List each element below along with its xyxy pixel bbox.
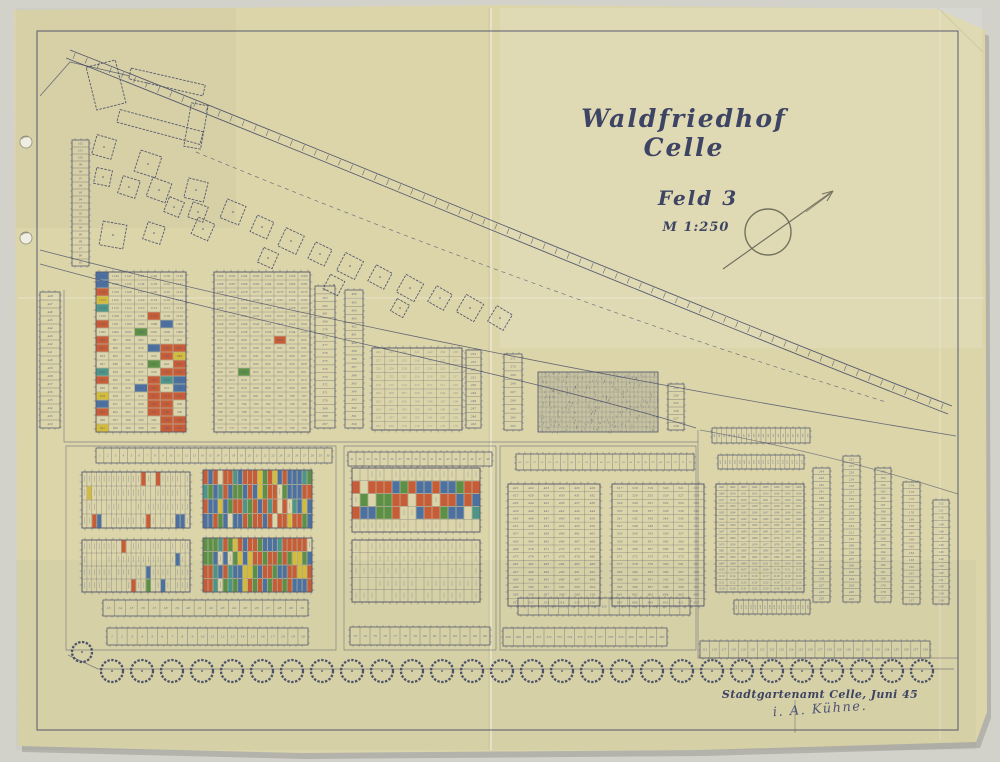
svg-text:853: 853 <box>301 338 306 342</box>
svg-text:599: 599 <box>177 410 182 414</box>
svg-text:1093: 1093 <box>125 330 132 334</box>
svg-text:1067: 1067 <box>740 537 747 540</box>
svg-text:1078: 1078 <box>773 543 780 546</box>
svg-text:1071: 1071 <box>784 537 791 540</box>
svg-text:24: 24 <box>231 606 236 610</box>
svg-text:253: 253 <box>470 360 477 364</box>
svg-text:231: 231 <box>818 557 825 561</box>
svg-text:600: 600 <box>164 410 169 414</box>
svg-text:379: 379 <box>618 635 623 639</box>
svg-text:1021: 1021 <box>762 499 769 502</box>
svg-text:1101: 1101 <box>762 562 769 565</box>
svg-text:577: 577 <box>617 562 623 566</box>
svg-text:794: 794 <box>241 402 246 406</box>
svg-text:247: 247 <box>470 407 477 411</box>
svg-text:475: 475 <box>512 555 519 559</box>
svg-text:797: 797 <box>301 394 306 398</box>
svg-text:1233: 1233 <box>301 330 308 334</box>
svg-text:15: 15 <box>209 454 213 457</box>
svg-text:1050: 1050 <box>729 524 736 527</box>
svg-text:1045: 1045 <box>762 518 769 521</box>
svg-text:13: 13 <box>107 606 111 610</box>
svg-text:435: 435 <box>543 501 550 505</box>
svg-text:849: 849 <box>253 346 258 350</box>
svg-text:141: 141 <box>938 578 944 582</box>
svg-text:237: 237 <box>818 516 825 520</box>
svg-text:602: 602 <box>138 410 143 414</box>
svg-text:395: 395 <box>351 381 357 385</box>
svg-text:1121: 1121 <box>125 298 132 302</box>
svg-text:1118: 1118 <box>163 298 170 302</box>
svg-text:1040: 1040 <box>795 512 802 515</box>
svg-text:376: 376 <box>588 635 593 639</box>
svg-text:16: 16 <box>216 454 220 457</box>
svg-text:829: 829 <box>301 362 306 366</box>
svg-text:1051: 1051 <box>740 524 747 527</box>
svg-text:1267: 1267 <box>277 298 284 302</box>
svg-text:834: 834 <box>241 362 246 366</box>
svg-text:217: 217 <box>848 491 855 495</box>
svg-text:798: 798 <box>289 394 294 398</box>
svg-text:1035: 1035 <box>740 512 747 515</box>
svg-text:488: 488 <box>527 570 534 574</box>
svg-text:1133: 1133 <box>150 282 157 286</box>
svg-text:1246: 1246 <box>241 322 248 326</box>
svg-text:397: 397 <box>351 365 357 369</box>
svg-text:1084: 1084 <box>751 550 758 553</box>
svg-text:1100: 1100 <box>125 322 132 326</box>
svg-text:367: 367 <box>322 422 328 426</box>
svg-text:237: 237 <box>672 417 679 421</box>
svg-text:209: 209 <box>375 391 381 395</box>
svg-text:592: 592 <box>663 577 669 581</box>
svg-text:236: 236 <box>818 523 825 527</box>
svg-text:593: 593 <box>164 418 169 422</box>
svg-text:459: 459 <box>543 532 550 536</box>
svg-text:264: 264 <box>509 415 516 419</box>
svg-text:133: 133 <box>875 648 880 652</box>
svg-text:1260: 1260 <box>265 306 272 310</box>
svg-text:209: 209 <box>848 544 855 548</box>
svg-text:479: 479 <box>573 555 580 559</box>
svg-text:212: 212 <box>426 383 432 387</box>
svg-text:639: 639 <box>113 370 118 374</box>
svg-text:1076: 1076 <box>751 543 758 546</box>
svg-text:502: 502 <box>559 585 565 589</box>
svg-text:824: 824 <box>265 370 270 374</box>
svg-text:1114: 1114 <box>125 306 132 310</box>
svg-text:421: 421 <box>512 486 519 490</box>
svg-text:1265: 1265 <box>301 298 308 302</box>
svg-text:164: 164 <box>909 551 915 555</box>
svg-text:1235: 1235 <box>277 330 284 334</box>
svg-text:1286: 1286 <box>241 282 248 286</box>
svg-text:194: 194 <box>389 408 394 412</box>
svg-text:1039: 1039 <box>784 512 791 515</box>
svg-text:446: 446 <box>527 516 534 520</box>
svg-text:771: 771 <box>229 426 234 430</box>
svg-text:381: 381 <box>322 312 328 316</box>
svg-text:443: 443 <box>46 334 53 338</box>
svg-text:158: 158 <box>909 592 915 596</box>
svg-text:519: 519 <box>648 486 654 490</box>
svg-text:185: 185 <box>880 543 886 547</box>
svg-text:61: 61 <box>607 461 610 464</box>
svg-text:1294: 1294 <box>241 274 248 278</box>
svg-text:462: 462 <box>589 532 596 536</box>
svg-text:855: 855 <box>277 338 282 342</box>
svg-text:230: 230 <box>375 367 381 371</box>
svg-text:480: 480 <box>589 555 596 559</box>
svg-text:1115: 1115 <box>112 306 119 310</box>
svg-text:1259: 1259 <box>277 306 284 310</box>
svg-text:539: 539 <box>678 509 684 513</box>
svg-text:568: 568 <box>663 547 669 551</box>
svg-text:605: 605 <box>100 410 105 414</box>
svg-text:795: 795 <box>229 402 234 406</box>
svg-text:134: 134 <box>884 648 889 652</box>
svg-text:526: 526 <box>663 494 669 498</box>
svg-text:1272: 1272 <box>217 298 224 302</box>
svg-text:1264: 1264 <box>217 306 224 310</box>
svg-text:1269: 1269 <box>253 298 260 302</box>
svg-text:87: 87 <box>79 247 83 251</box>
svg-text:1028: 1028 <box>751 505 758 508</box>
svg-text:42: 42 <box>438 458 442 461</box>
svg-text:1058: 1058 <box>729 531 736 534</box>
svg-text:660: 660 <box>113 346 118 350</box>
svg-text:1262: 1262 <box>241 306 248 310</box>
svg-text:1242: 1242 <box>289 322 296 326</box>
svg-text:784: 784 <box>265 410 270 414</box>
svg-text:206: 206 <box>848 564 855 568</box>
svg-text:441: 441 <box>46 350 53 354</box>
svg-text:208: 208 <box>388 391 394 395</box>
svg-text:1095: 1095 <box>99 330 106 334</box>
svg-text:569: 569 <box>678 547 684 551</box>
svg-text:1110: 1110 <box>773 569 780 572</box>
svg-text:602: 602 <box>632 593 638 597</box>
svg-text:431: 431 <box>573 494 580 498</box>
svg-text:796: 796 <box>217 402 222 406</box>
svg-text:1141: 1141 <box>138 274 145 278</box>
svg-text:366: 366 <box>672 605 677 609</box>
svg-text:130: 130 <box>846 648 851 652</box>
svg-text:1131: 1131 <box>740 588 747 591</box>
svg-text:228: 228 <box>401 367 407 371</box>
svg-text:392: 392 <box>351 406 357 410</box>
svg-text:219: 219 <box>426 375 432 379</box>
svg-text:162: 162 <box>909 565 915 569</box>
svg-text:1127: 1127 <box>784 581 791 584</box>
svg-text:494: 494 <box>527 577 534 581</box>
svg-text:359: 359 <box>602 605 607 609</box>
svg-text:588: 588 <box>694 570 700 574</box>
svg-text:455: 455 <box>573 524 580 528</box>
svg-text:1069: 1069 <box>762 537 769 540</box>
svg-text:767: 767 <box>277 426 282 430</box>
svg-text:393: 393 <box>351 398 357 402</box>
svg-text:587: 587 <box>151 426 156 430</box>
svg-text:250: 250 <box>470 383 477 387</box>
svg-text:220: 220 <box>848 471 855 475</box>
svg-text:149: 149 <box>938 522 944 526</box>
svg-text:252: 252 <box>470 368 477 372</box>
svg-text:235: 235 <box>672 401 679 405</box>
svg-text:583: 583 <box>617 570 623 574</box>
svg-text:1099: 1099 <box>138 322 145 326</box>
svg-text:444: 444 <box>46 326 53 330</box>
svg-text:235: 235 <box>401 358 407 362</box>
svg-text:378: 378 <box>322 335 328 339</box>
svg-text:457: 457 <box>512 532 519 536</box>
svg-text:791: 791 <box>277 402 282 406</box>
svg-text:1134: 1134 <box>773 588 780 591</box>
svg-text:1031: 1031 <box>784 505 791 508</box>
svg-text:474: 474 <box>589 547 596 551</box>
svg-text:1256: 1256 <box>217 314 224 318</box>
svg-text:555: 555 <box>648 532 654 536</box>
svg-text:4: 4 <box>140 635 143 639</box>
svg-text:857: 857 <box>253 338 258 342</box>
svg-text:656: 656 <box>164 346 169 350</box>
svg-text:532: 532 <box>663 501 669 505</box>
svg-text:1274: 1274 <box>289 290 296 294</box>
svg-text:1079: 1079 <box>784 543 791 546</box>
svg-text:840: 840 <box>265 354 270 358</box>
svg-text:456: 456 <box>589 524 596 528</box>
svg-text:463: 463 <box>512 539 519 543</box>
svg-text:358: 358 <box>591 605 596 609</box>
svg-text:163: 163 <box>909 558 915 562</box>
svg-text:221: 221 <box>848 464 855 468</box>
svg-text:813: 813 <box>301 378 306 382</box>
svg-text:427: 427 <box>512 494 519 498</box>
svg-text:142: 142 <box>938 571 944 575</box>
svg-text:241: 241 <box>413 350 419 354</box>
svg-text:634: 634 <box>177 370 182 374</box>
svg-text:1097: 1097 <box>718 562 725 565</box>
svg-text:1249: 1249 <box>301 314 308 318</box>
svg-text:219: 219 <box>848 477 855 481</box>
svg-text:614: 614 <box>164 394 169 398</box>
svg-text:1081: 1081 <box>718 550 725 553</box>
svg-text:1030: 1030 <box>773 505 780 508</box>
svg-text:1047: 1047 <box>784 518 791 521</box>
svg-text:118: 118 <box>731 648 736 652</box>
svg-text:570: 570 <box>694 547 700 551</box>
svg-text:804: 804 <box>217 394 222 398</box>
svg-text:1009: 1009 <box>718 492 725 495</box>
svg-text:630: 630 <box>138 378 143 382</box>
svg-text:237: 237 <box>375 358 381 362</box>
svg-text:182: 182 <box>880 563 886 567</box>
svg-text:1287: 1287 <box>229 282 236 286</box>
svg-text:774: 774 <box>289 418 294 422</box>
svg-text:202: 202 <box>848 590 855 594</box>
svg-text:369: 369 <box>516 635 521 639</box>
svg-text:24: 24 <box>278 454 283 457</box>
svg-text:601: 601 <box>617 593 623 597</box>
svg-text:238: 238 <box>672 424 679 428</box>
svg-text:1142: 1142 <box>125 274 132 278</box>
svg-text:1102: 1102 <box>99 322 106 326</box>
svg-text:1098: 1098 <box>729 562 736 565</box>
svg-text:476: 476 <box>527 555 534 559</box>
svg-text:242: 242 <box>401 350 407 354</box>
svg-text:1006: 1006 <box>773 486 780 489</box>
svg-text:655: 655 <box>177 346 182 350</box>
svg-text:1105: 1105 <box>718 569 725 572</box>
svg-text:1114: 1114 <box>729 575 736 578</box>
svg-text:511: 511 <box>513 600 519 604</box>
svg-text:74: 74 <box>363 634 367 638</box>
svg-text:491: 491 <box>763 434 765 438</box>
svg-text:19: 19 <box>175 606 179 610</box>
svg-text:235: 235 <box>818 530 825 534</box>
svg-text:354: 354 <box>551 605 556 609</box>
svg-text:27: 27 <box>302 454 307 457</box>
svg-text:1099: 1099 <box>740 562 747 565</box>
svg-text:39: 39 <box>414 458 418 461</box>
svg-text:222: 222 <box>388 375 394 379</box>
svg-text:1143: 1143 <box>112 274 119 278</box>
svg-text:117: 117 <box>721 648 726 652</box>
svg-text:537: 537 <box>648 509 654 513</box>
svg-text:182: 182 <box>453 416 458 420</box>
svg-text:447: 447 <box>46 302 53 306</box>
svg-text:770: 770 <box>241 426 246 430</box>
svg-text:375: 375 <box>322 359 328 363</box>
svg-text:1034: 1034 <box>729 512 736 515</box>
svg-text:482: 482 <box>527 562 534 566</box>
svg-text:458: 458 <box>527 532 534 536</box>
svg-text:189: 189 <box>880 516 886 520</box>
svg-text:25: 25 <box>242 606 247 610</box>
svg-text:178: 178 <box>414 424 419 428</box>
svg-text:215: 215 <box>388 383 394 387</box>
svg-text:571: 571 <box>617 555 623 559</box>
svg-text:12: 12 <box>221 635 225 639</box>
svg-text:271: 271 <box>509 356 516 360</box>
svg-text:551: 551 <box>678 524 684 528</box>
svg-text:1239: 1239 <box>229 330 236 334</box>
svg-text:807: 807 <box>277 386 282 390</box>
svg-text:232: 232 <box>818 550 825 554</box>
svg-text:1057: 1057 <box>718 531 725 534</box>
svg-text:191: 191 <box>427 408 432 412</box>
svg-text:826: 826 <box>241 370 246 374</box>
svg-text:368: 368 <box>322 414 328 418</box>
svg-text:93: 93 <box>79 205 83 209</box>
svg-text:585: 585 <box>648 570 654 574</box>
svg-text:193: 193 <box>402 408 407 412</box>
svg-text:451: 451 <box>784 605 786 609</box>
svg-text:546: 546 <box>694 516 700 520</box>
svg-text:223: 223 <box>375 375 381 379</box>
svg-text:1053: 1053 <box>762 524 769 527</box>
svg-text:477: 477 <box>543 555 550 559</box>
svg-text:362: 362 <box>632 605 637 609</box>
svg-text:352: 352 <box>531 605 536 609</box>
svg-text:500: 500 <box>528 585 534 589</box>
svg-text:533: 533 <box>678 501 684 505</box>
svg-text:620: 620 <box>177 386 182 390</box>
svg-text:608: 608 <box>151 402 156 406</box>
svg-text:440: 440 <box>46 358 53 362</box>
svg-text:554: 554 <box>632 532 638 536</box>
svg-text:1029: 1029 <box>762 505 769 508</box>
svg-text:18: 18 <box>281 635 285 639</box>
svg-text:1060: 1060 <box>751 531 758 534</box>
svg-text:612: 612 <box>694 600 700 604</box>
svg-text:243: 243 <box>388 350 394 354</box>
svg-text:195: 195 <box>880 476 886 480</box>
svg-text:1280: 1280 <box>217 290 224 294</box>
svg-text:591: 591 <box>648 577 654 581</box>
svg-text:94: 94 <box>79 198 83 202</box>
svg-text:1098: 1098 <box>150 322 157 326</box>
svg-text:445: 445 <box>46 318 53 322</box>
svg-text:192: 192 <box>414 408 419 412</box>
svg-text:210: 210 <box>452 383 458 387</box>
svg-text:201: 201 <box>388 399 394 403</box>
svg-text:481: 481 <box>512 562 519 566</box>
svg-text:1056: 1056 <box>795 524 802 527</box>
svg-text:1113: 1113 <box>138 306 145 310</box>
svg-text:635: 635 <box>164 370 169 374</box>
svg-text:835: 835 <box>229 362 234 366</box>
svg-text:423: 423 <box>543 486 550 490</box>
svg-text:1284: 1284 <box>265 282 272 286</box>
svg-text:442: 442 <box>558 509 565 513</box>
svg-text:471: 471 <box>768 460 770 464</box>
svg-text:765: 765 <box>301 426 306 430</box>
svg-text:161: 161 <box>909 572 915 576</box>
svg-text:1109: 1109 <box>99 314 106 318</box>
svg-text:1055: 1055 <box>784 524 791 527</box>
svg-text:380: 380 <box>322 320 328 324</box>
svg-text:28: 28 <box>310 454 315 457</box>
svg-text:1247: 1247 <box>229 322 236 326</box>
svg-text:434: 434 <box>527 501 534 505</box>
svg-text:497: 497 <box>573 577 580 581</box>
svg-text:184: 184 <box>880 550 886 554</box>
svg-text:75: 75 <box>373 634 377 638</box>
svg-text:384: 384 <box>322 288 328 292</box>
svg-text:1252: 1252 <box>265 314 272 318</box>
svg-text:224: 224 <box>452 367 458 371</box>
svg-text:587: 587 <box>678 570 684 574</box>
svg-text:437: 437 <box>46 382 53 386</box>
svg-text:619: 619 <box>100 394 105 398</box>
svg-text:858: 858 <box>241 338 246 342</box>
svg-text:30: 30 <box>327 454 331 457</box>
svg-text:521: 521 <box>678 486 684 490</box>
svg-text:189: 189 <box>453 408 458 412</box>
svg-text:383: 383 <box>322 296 328 300</box>
svg-text:1296: 1296 <box>217 274 224 278</box>
svg-text:851: 851 <box>229 346 234 350</box>
svg-text:193: 193 <box>880 490 886 494</box>
svg-text:403: 403 <box>350 316 357 320</box>
svg-text:197: 197 <box>440 399 445 403</box>
svg-text:1132: 1132 <box>163 282 170 286</box>
svg-text:202: 202 <box>375 399 381 403</box>
svg-text:1080: 1080 <box>795 543 802 546</box>
svg-text:1016: 1016 <box>795 492 802 495</box>
svg-text:29: 29 <box>288 606 293 610</box>
